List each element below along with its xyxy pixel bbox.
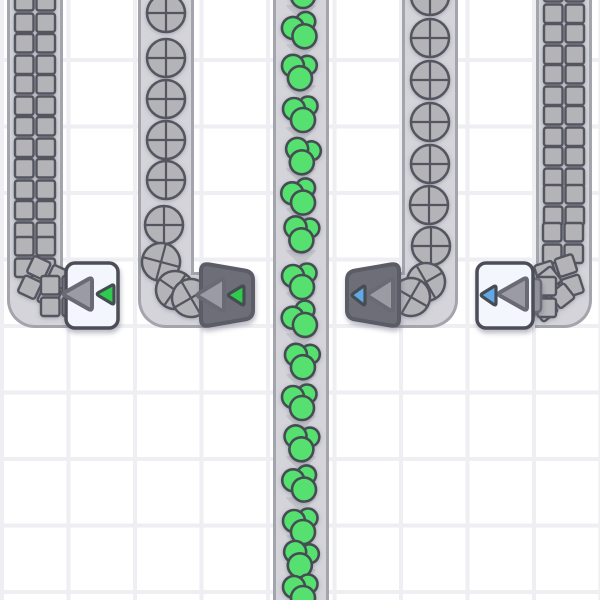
device-dark-green-left[interactable] bbox=[198, 264, 253, 326]
grid-line-vertical bbox=[466, 0, 470, 600]
item-circle bbox=[411, 19, 449, 57]
item-circle bbox=[145, 206, 183, 244]
item-berry bbox=[283, 575, 318, 600]
game-viewport bbox=[0, 0, 600, 600]
item-circle bbox=[411, 145, 449, 183]
item-circle bbox=[147, 0, 185, 32]
grid-line-vertical bbox=[266, 0, 270, 600]
item-circle bbox=[411, 103, 449, 141]
item-circle bbox=[412, 227, 450, 265]
item-circle bbox=[147, 161, 185, 199]
grid-line-vertical bbox=[333, 0, 337, 600]
item-circle bbox=[410, 186, 448, 224]
item-circle bbox=[411, 61, 449, 99]
item-circle bbox=[147, 80, 185, 118]
device-white-blue-right[interactable] bbox=[477, 263, 541, 328]
grid-line-vertical bbox=[0, 0, 4, 600]
grid-line-vertical bbox=[133, 0, 137, 600]
device-white-green-left[interactable] bbox=[64, 263, 118, 328]
item-circle bbox=[147, 121, 185, 159]
item-circle bbox=[147, 39, 185, 77]
device-dark-blue-right[interactable] bbox=[347, 264, 399, 326]
